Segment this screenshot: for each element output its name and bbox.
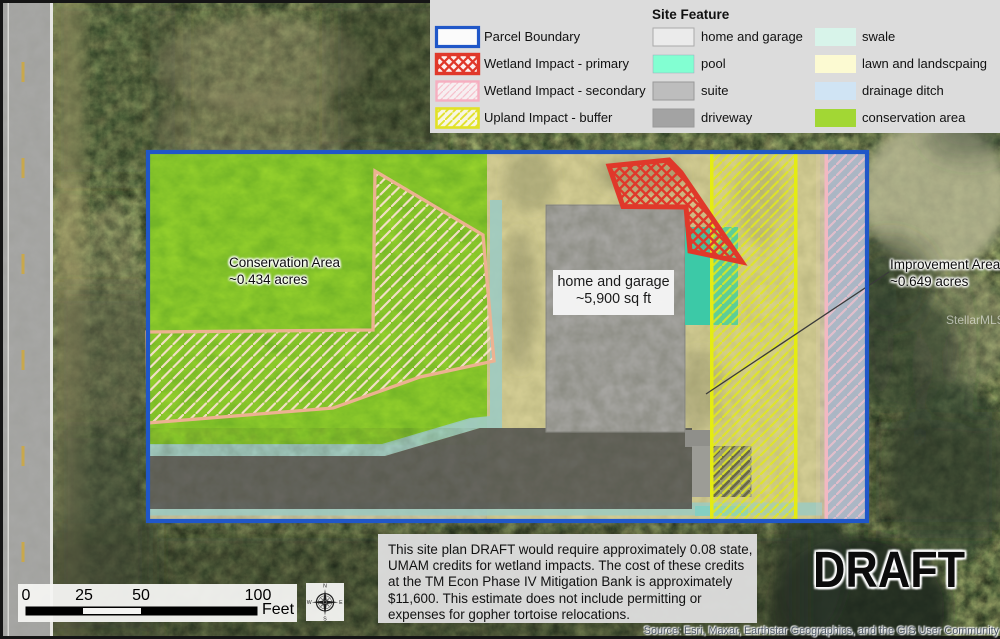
svg-text:S: S — [323, 617, 327, 622]
svg-text:50: 50 — [132, 587, 150, 604]
svg-text:N: N — [323, 584, 327, 590]
svg-text:25: 25 — [75, 587, 93, 604]
svg-text:Feet: Feet — [262, 601, 295, 618]
svg-text:E: E — [339, 600, 343, 606]
svg-text:W: W — [307, 600, 312, 606]
svg-text:0: 0 — [22, 587, 31, 604]
svg-text:StellarMLS: StellarMLS — [946, 313, 1000, 327]
